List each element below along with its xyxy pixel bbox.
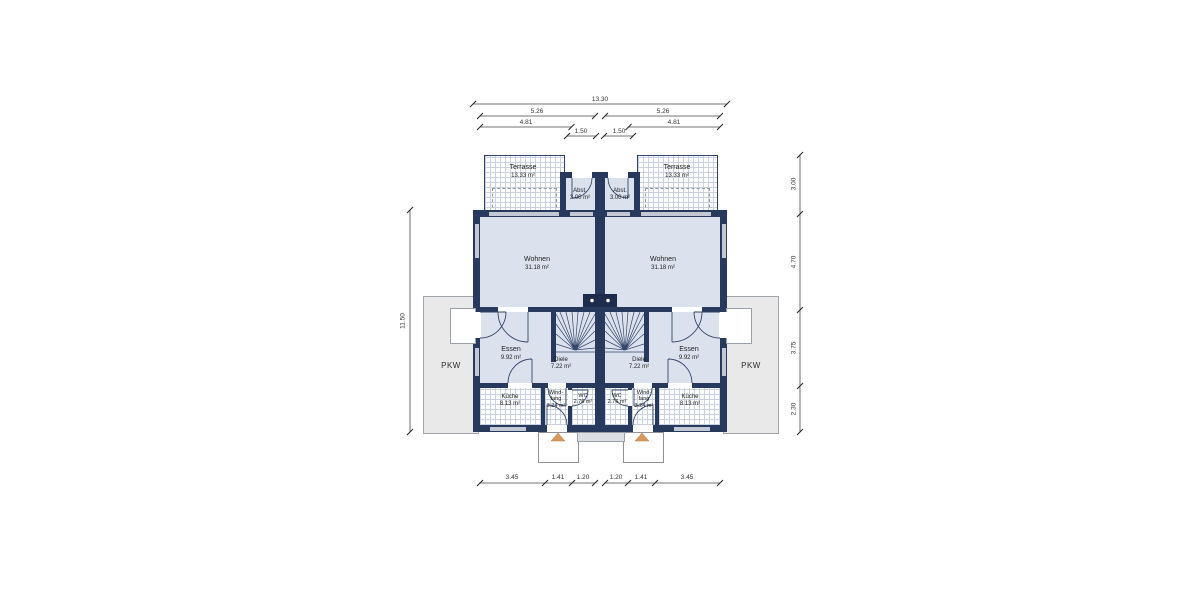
room-label-diele-left: Diele 7.22 m² [551,357,571,371]
door-opening-windfang-left [548,383,566,388]
wall-kueche-row-right [605,383,720,388]
wall-stair-left [551,307,556,362]
room-area: 31.18 m² [650,265,676,273]
door-opening-wohnen-left [498,307,528,312]
room-floor-essen-diele-left [480,312,595,383]
room-name: Diele [629,357,649,364]
front-door-opening-right [633,425,653,432]
wall-kueche-row-left [480,383,595,388]
door-opening-wc-right [628,390,632,406]
wall-abst-right [634,172,640,217]
room-label-wc-right: WC 2.76 m² [608,393,627,406]
room-area: 7.22 m² [629,364,649,371]
room-name: Diele [551,357,571,364]
room-name: Wohnen [524,256,550,265]
room-area: 3.24 m² [547,403,566,409]
room-area: 2.76 m² [608,399,627,405]
room-label-windfang-left: Wind- fang 3.24 m² [547,390,566,409]
dim-bottom-4: 1.20 [610,474,623,481]
room-label-terrasse-left: Terrasse 13.33 m² [510,164,537,180]
room-label-essen-right: Essen 9.92 m² [679,346,699,362]
wall-stair-right [644,307,649,362]
wall-abst-left [560,172,566,217]
carport-right-label: PKW [741,361,761,370]
dim-left-total: 11.50 [400,313,407,329]
dim-bottom-5: 1.41 [635,474,648,481]
dim-top-total: 13.30 [592,96,608,103]
carport-left-label: PKW [441,361,461,370]
window-top-right [641,212,711,216]
side-door-opening-right [719,312,728,338]
room-label-abst-left: Abst. 3.00 m² [570,188,590,202]
door-opening-wohnen-right [672,307,702,312]
room-name: Terrasse [664,164,691,173]
room-label-abst-right: Abst. 3.00 m² [610,188,630,202]
room-label-kueche-left: Küche 8.13 m² [500,394,520,408]
room-label-wohnen-right: Wohnen 31.18 m² [650,256,676,272]
room-area: 13.33 m² [664,173,691,181]
front-door-opening-left [547,425,567,432]
room-area: 7.22 m² [551,364,571,371]
dim-right-wohnen: 4.70 [791,256,798,269]
room-area: 3.00 m² [570,195,590,202]
room-label-diele-right: Diele 7.22 m² [629,357,649,371]
room-area: 9.92 m² [679,355,699,363]
window-essen-right [722,348,726,376]
window-essen-left [475,348,479,376]
room-area: 8.13 m² [680,401,700,408]
room-floor-essen-diele-right [605,312,720,383]
dim-right-mid: 3.75 [791,342,798,355]
room-name: Wohnen [650,256,676,265]
room-area: 3.00 m² [610,195,630,202]
room-area: 8.13 m² [500,401,520,408]
room-area: 13.33 m² [510,173,537,181]
door-opening-kueche-left [508,383,532,388]
door-opening-kueche-right [668,383,692,388]
room-label-terrasse-right: Terrasse 13.33 m² [664,164,691,180]
window-abst-left [570,212,593,216]
floor-plan-canvas: PKW PKW [0,0,1200,600]
dim-top-half-left: 5.26 [531,108,544,115]
entrance-porch-left [538,432,579,463]
dim-top-mid-left: 1.50 [575,128,588,135]
side-entrance-notch-right [726,308,752,344]
room-name: Abst. [570,188,590,195]
room-label-essen-left: Essen 9.92 m² [501,346,521,362]
window-top-left [489,212,559,216]
dim-right-kueche: 2.30 [791,403,798,416]
room-label-wohnen-left: Wohnen 31.18 m² [524,256,550,272]
room-area: 31.18 m² [524,265,550,273]
room-label-wc-left: WC 2.76 m² [574,393,593,406]
window-kueche-left [490,427,526,431]
room-label-windfang-right: Wind- fang 3.24 m² [635,390,654,409]
dim-bottom-1: 3.45 [506,474,519,481]
room-name: Essen [679,346,699,355]
window-wohnen-right [722,224,726,258]
entrance-porch-right [623,432,664,463]
room-name: Küche [680,394,700,401]
side-door-opening-left [472,312,481,338]
wall-kueche-windfang-right [655,388,659,425]
dim-bottom-3: 1.20 [577,474,590,481]
dim-right-terrace: 3.00 [791,178,798,191]
wall-kueche-windfang-left [541,388,545,425]
room-name: Essen [501,346,521,355]
window-wohnen-left [475,224,479,258]
dim-top-half-right: 5.26 [657,108,670,115]
dim-bottom-6: 3.45 [681,474,694,481]
dim-top-inner-right: 4.81 [668,119,681,126]
door-opening-wc-left [568,390,572,406]
room-label-kueche-right: Küche 8.13 m² [680,394,700,408]
room-name: Terrasse [510,164,537,173]
dim-top-mid-right: 1.50 [613,128,626,135]
dim-top-inner-left: 4.81 [520,119,533,126]
door-opening-abst-right [608,172,628,178]
dim-bottom-2: 1.41 [552,474,565,481]
window-abst-right [607,212,630,216]
wall-wohnen-essen-right [605,307,720,312]
room-area: 2.76 m² [574,399,593,405]
room-area: 9.92 m² [501,355,521,363]
chimney-block [583,294,617,307]
room-area: 3.24 m² [635,403,654,409]
room-name: Küche [500,394,520,401]
paving-strip [577,432,625,442]
door-opening-abst-left [572,172,592,178]
room-name: Abst. [610,188,630,195]
door-opening-windfang-right [634,383,652,388]
window-kueche-right [674,427,710,431]
